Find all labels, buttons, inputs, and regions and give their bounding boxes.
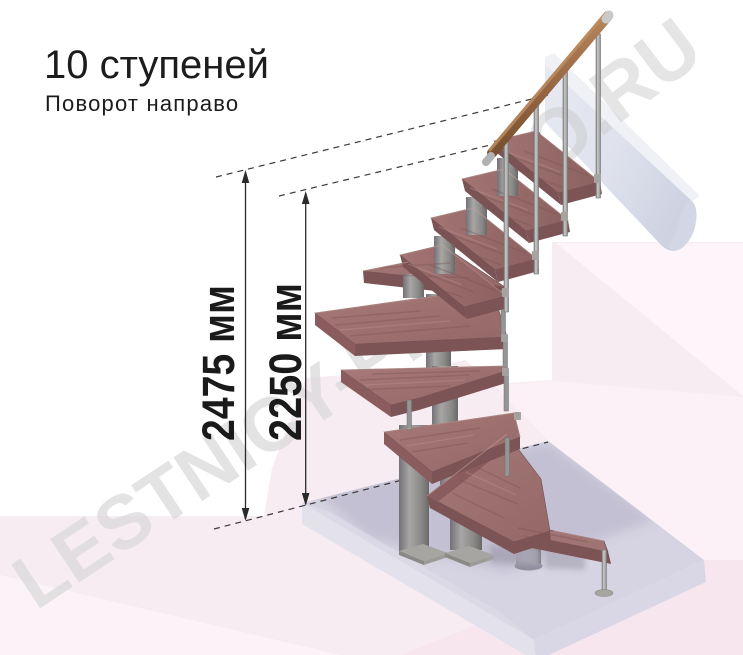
svg-text:Поворот направо: Поворот направо bbox=[45, 91, 239, 116]
svg-text:2475 мм: 2475 мм bbox=[193, 285, 244, 441]
svg-text:2250 мм: 2250 мм bbox=[260, 283, 311, 441]
svg-text:10 ступеней: 10 ступеней bbox=[44, 43, 269, 87]
